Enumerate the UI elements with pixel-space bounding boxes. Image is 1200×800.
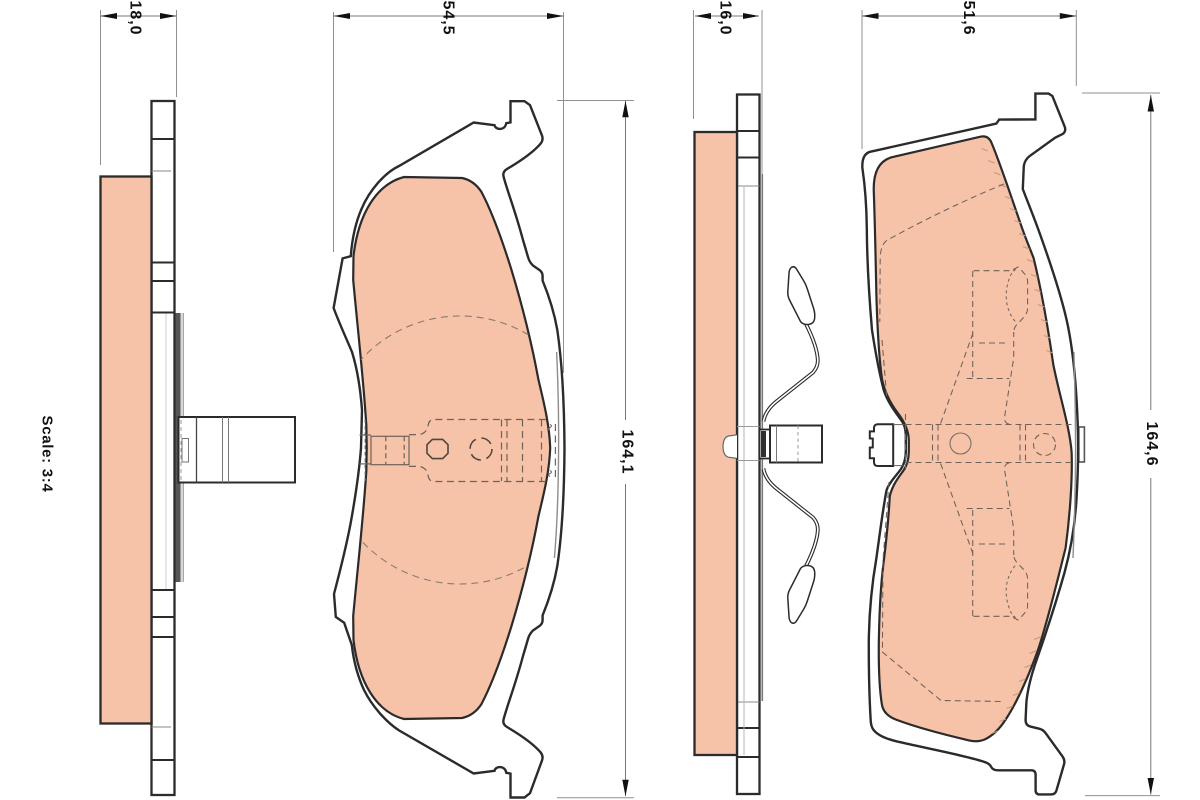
- svg-text:18,0: 18,0: [127, 0, 144, 35]
- svg-text:164,1: 164,1: [619, 429, 636, 474]
- svg-text:Scale: 3:4: Scale: 3:4: [39, 415, 56, 492]
- svg-text:164,6: 164,6: [1143, 421, 1160, 466]
- svg-text:51,6: 51,6: [960, 0, 977, 35]
- svg-text:16,0: 16,0: [717, 0, 734, 35]
- svg-text:54,5: 54,5: [440, 0, 457, 35]
